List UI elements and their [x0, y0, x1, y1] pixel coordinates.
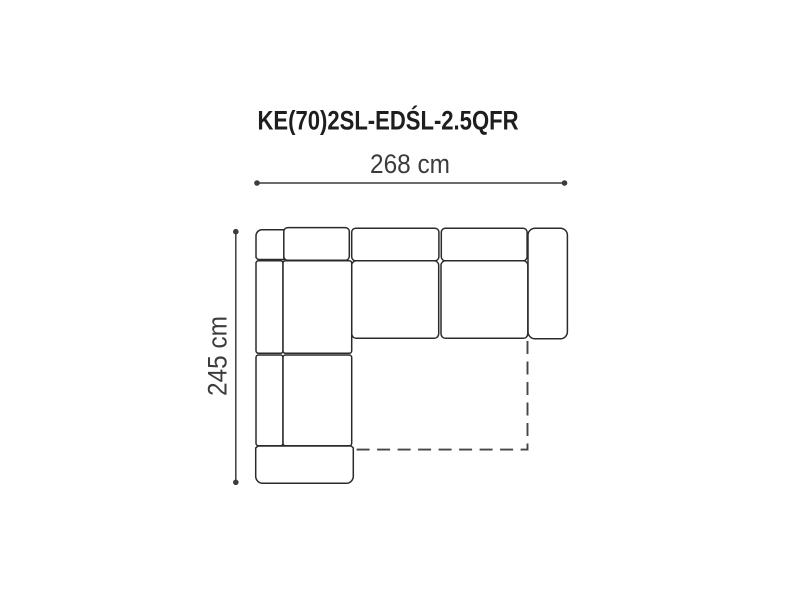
svg-text:KE(70)2SL-EDŚL-2.5QFR: KE(70)2SL-EDŚL-2.5QFR — [258, 105, 519, 136]
svg-text:245 cm: 245 cm — [203, 316, 233, 396]
svg-text:268 cm: 268 cm — [370, 149, 450, 179]
